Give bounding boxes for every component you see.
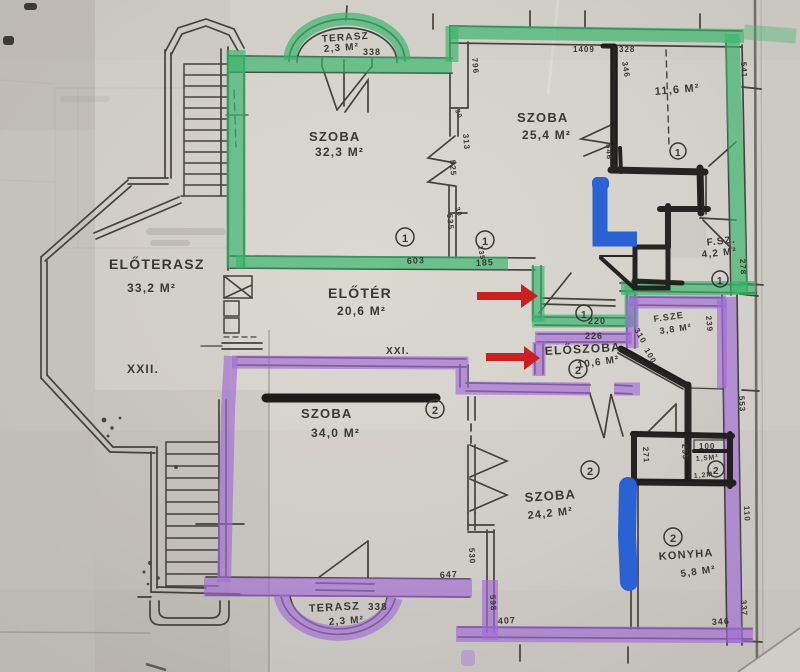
svg-text:338: 338 xyxy=(363,47,381,57)
svg-text:278: 278 xyxy=(738,259,748,276)
svg-text:239: 239 xyxy=(704,315,714,332)
svg-text:647: 647 xyxy=(440,569,459,580)
svg-text:1409: 1409 xyxy=(573,45,595,54)
svg-text:530: 530 xyxy=(467,548,477,565)
svg-text:ELŐTERASZ: ELŐTERASZ xyxy=(109,255,205,272)
svg-text:25,4 M²: 25,4 M² xyxy=(522,128,571,142)
svg-text:338: 338 xyxy=(368,602,388,613)
svg-text:34,0 M²: 34,0 M² xyxy=(311,426,360,440)
svg-text:1: 1 xyxy=(675,148,682,159)
svg-text:226: 226 xyxy=(585,331,603,341)
svg-text:33,2 M²: 33,2 M² xyxy=(127,281,176,295)
svg-text:100: 100 xyxy=(699,442,715,451)
svg-text:1: 1 xyxy=(581,310,588,321)
svg-text:541: 541 xyxy=(739,62,749,79)
svg-text:313: 313 xyxy=(461,133,471,150)
svg-text:337: 337 xyxy=(739,600,749,617)
svg-text:2: 2 xyxy=(670,533,677,545)
svg-text:1: 1 xyxy=(717,276,724,287)
svg-text:SZOBA: SZOBA xyxy=(309,129,361,144)
svg-text:SZOBA: SZOBA xyxy=(301,406,353,421)
svg-text:220: 220 xyxy=(588,316,606,326)
svg-text:110: 110 xyxy=(742,506,752,522)
svg-text:SZOBA: SZOBA xyxy=(517,110,569,125)
svg-text:2: 2 xyxy=(587,466,594,478)
svg-text:553: 553 xyxy=(737,396,747,413)
svg-text:32,3 M²: 32,3 M² xyxy=(315,145,364,159)
svg-text:20,6 M²: 20,6 M² xyxy=(337,304,386,318)
svg-text:1: 1 xyxy=(402,233,409,245)
svg-text:XXI.: XXI. xyxy=(386,346,410,357)
svg-text:2: 2 xyxy=(713,466,720,477)
svg-text:2: 2 xyxy=(432,405,439,417)
svg-text:328: 328 xyxy=(619,45,635,54)
svg-text:598: 598 xyxy=(488,595,498,612)
svg-text:346: 346 xyxy=(712,616,731,627)
svg-text:ELŐTÉR: ELŐTÉR xyxy=(328,284,392,301)
svg-text:796: 796 xyxy=(470,57,480,74)
svg-text:603: 603 xyxy=(407,255,426,266)
svg-text:407: 407 xyxy=(498,615,517,626)
svg-text:525: 525 xyxy=(448,160,458,177)
svg-text:271: 271 xyxy=(641,447,651,464)
svg-text:XXII.: XXII. xyxy=(127,362,159,376)
svg-text:2: 2 xyxy=(575,365,582,377)
svg-text:295: 295 xyxy=(680,444,690,461)
svg-text:546: 546 xyxy=(604,144,614,161)
svg-text:535: 535 xyxy=(445,213,455,230)
